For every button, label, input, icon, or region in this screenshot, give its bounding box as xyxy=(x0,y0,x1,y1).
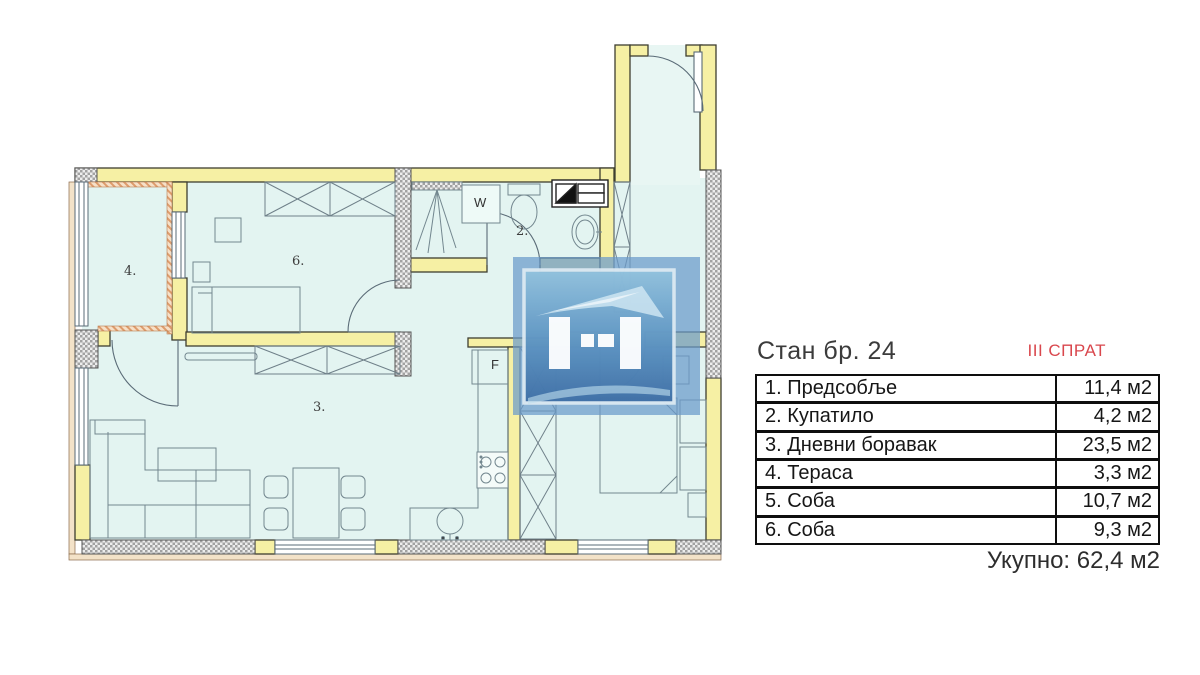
apartment-title: Стан бр. 24 xyxy=(757,337,896,366)
table-row: 5. Соба 10,7 м2 xyxy=(755,487,1160,516)
room-area: 3,3 м2 xyxy=(1055,461,1158,486)
washer-label: W xyxy=(474,195,486,210)
total-area: Укупно: 62,4 м2 xyxy=(755,547,1162,575)
vent-shaft xyxy=(552,180,608,207)
floor-plan-page: 4. 6. 2. 3. W F Стан бр. 24 III СПРАТ 1.… xyxy=(0,0,1200,675)
table-row: 1. Предсобље 11,4 м2 xyxy=(755,374,1160,403)
fridge-label: F xyxy=(491,357,499,372)
table-row: 3. Дневни боравак 23,5 м2 xyxy=(755,431,1160,460)
watermark-logo xyxy=(513,257,700,415)
room-name: 2. Купатило xyxy=(757,404,1055,429)
room-area: 11,4 м2 xyxy=(1055,376,1158,401)
floor-badge: III СПРАТ xyxy=(1028,341,1161,361)
panel-header: Стан бр. 24 III СПРАТ xyxy=(757,336,1160,366)
room-name: 6. Соба xyxy=(757,518,1055,543)
room-name: 1. Предсобље xyxy=(757,376,1055,401)
table-row: 2. Купатило 4,2 м2 xyxy=(755,402,1160,431)
table-row: 4. Тераса 3,3 м2 xyxy=(755,459,1160,488)
room-area: 10,7 м2 xyxy=(1055,489,1158,514)
room2-label: 2. xyxy=(516,224,528,239)
room3-label: 3. xyxy=(313,400,325,415)
room-name: 5. Соба xyxy=(757,489,1055,514)
room-name: 3. Дневни боравак xyxy=(757,433,1055,458)
room-area: 4,2 м2 xyxy=(1055,404,1158,429)
room-area: 23,5 м2 xyxy=(1055,433,1158,458)
area-table: 1. Предсобље 11,4 м2 2. Купатило 4,2 м2 … xyxy=(755,374,1160,545)
room-name: 4. Тераса xyxy=(757,461,1055,486)
room6-label: 6. xyxy=(292,254,304,269)
room4-label: 4. xyxy=(124,264,136,279)
table-row: 6. Соба 9,3 м2 xyxy=(755,516,1160,545)
stove xyxy=(477,452,508,488)
room-area: 9,3 м2 xyxy=(1055,518,1158,543)
